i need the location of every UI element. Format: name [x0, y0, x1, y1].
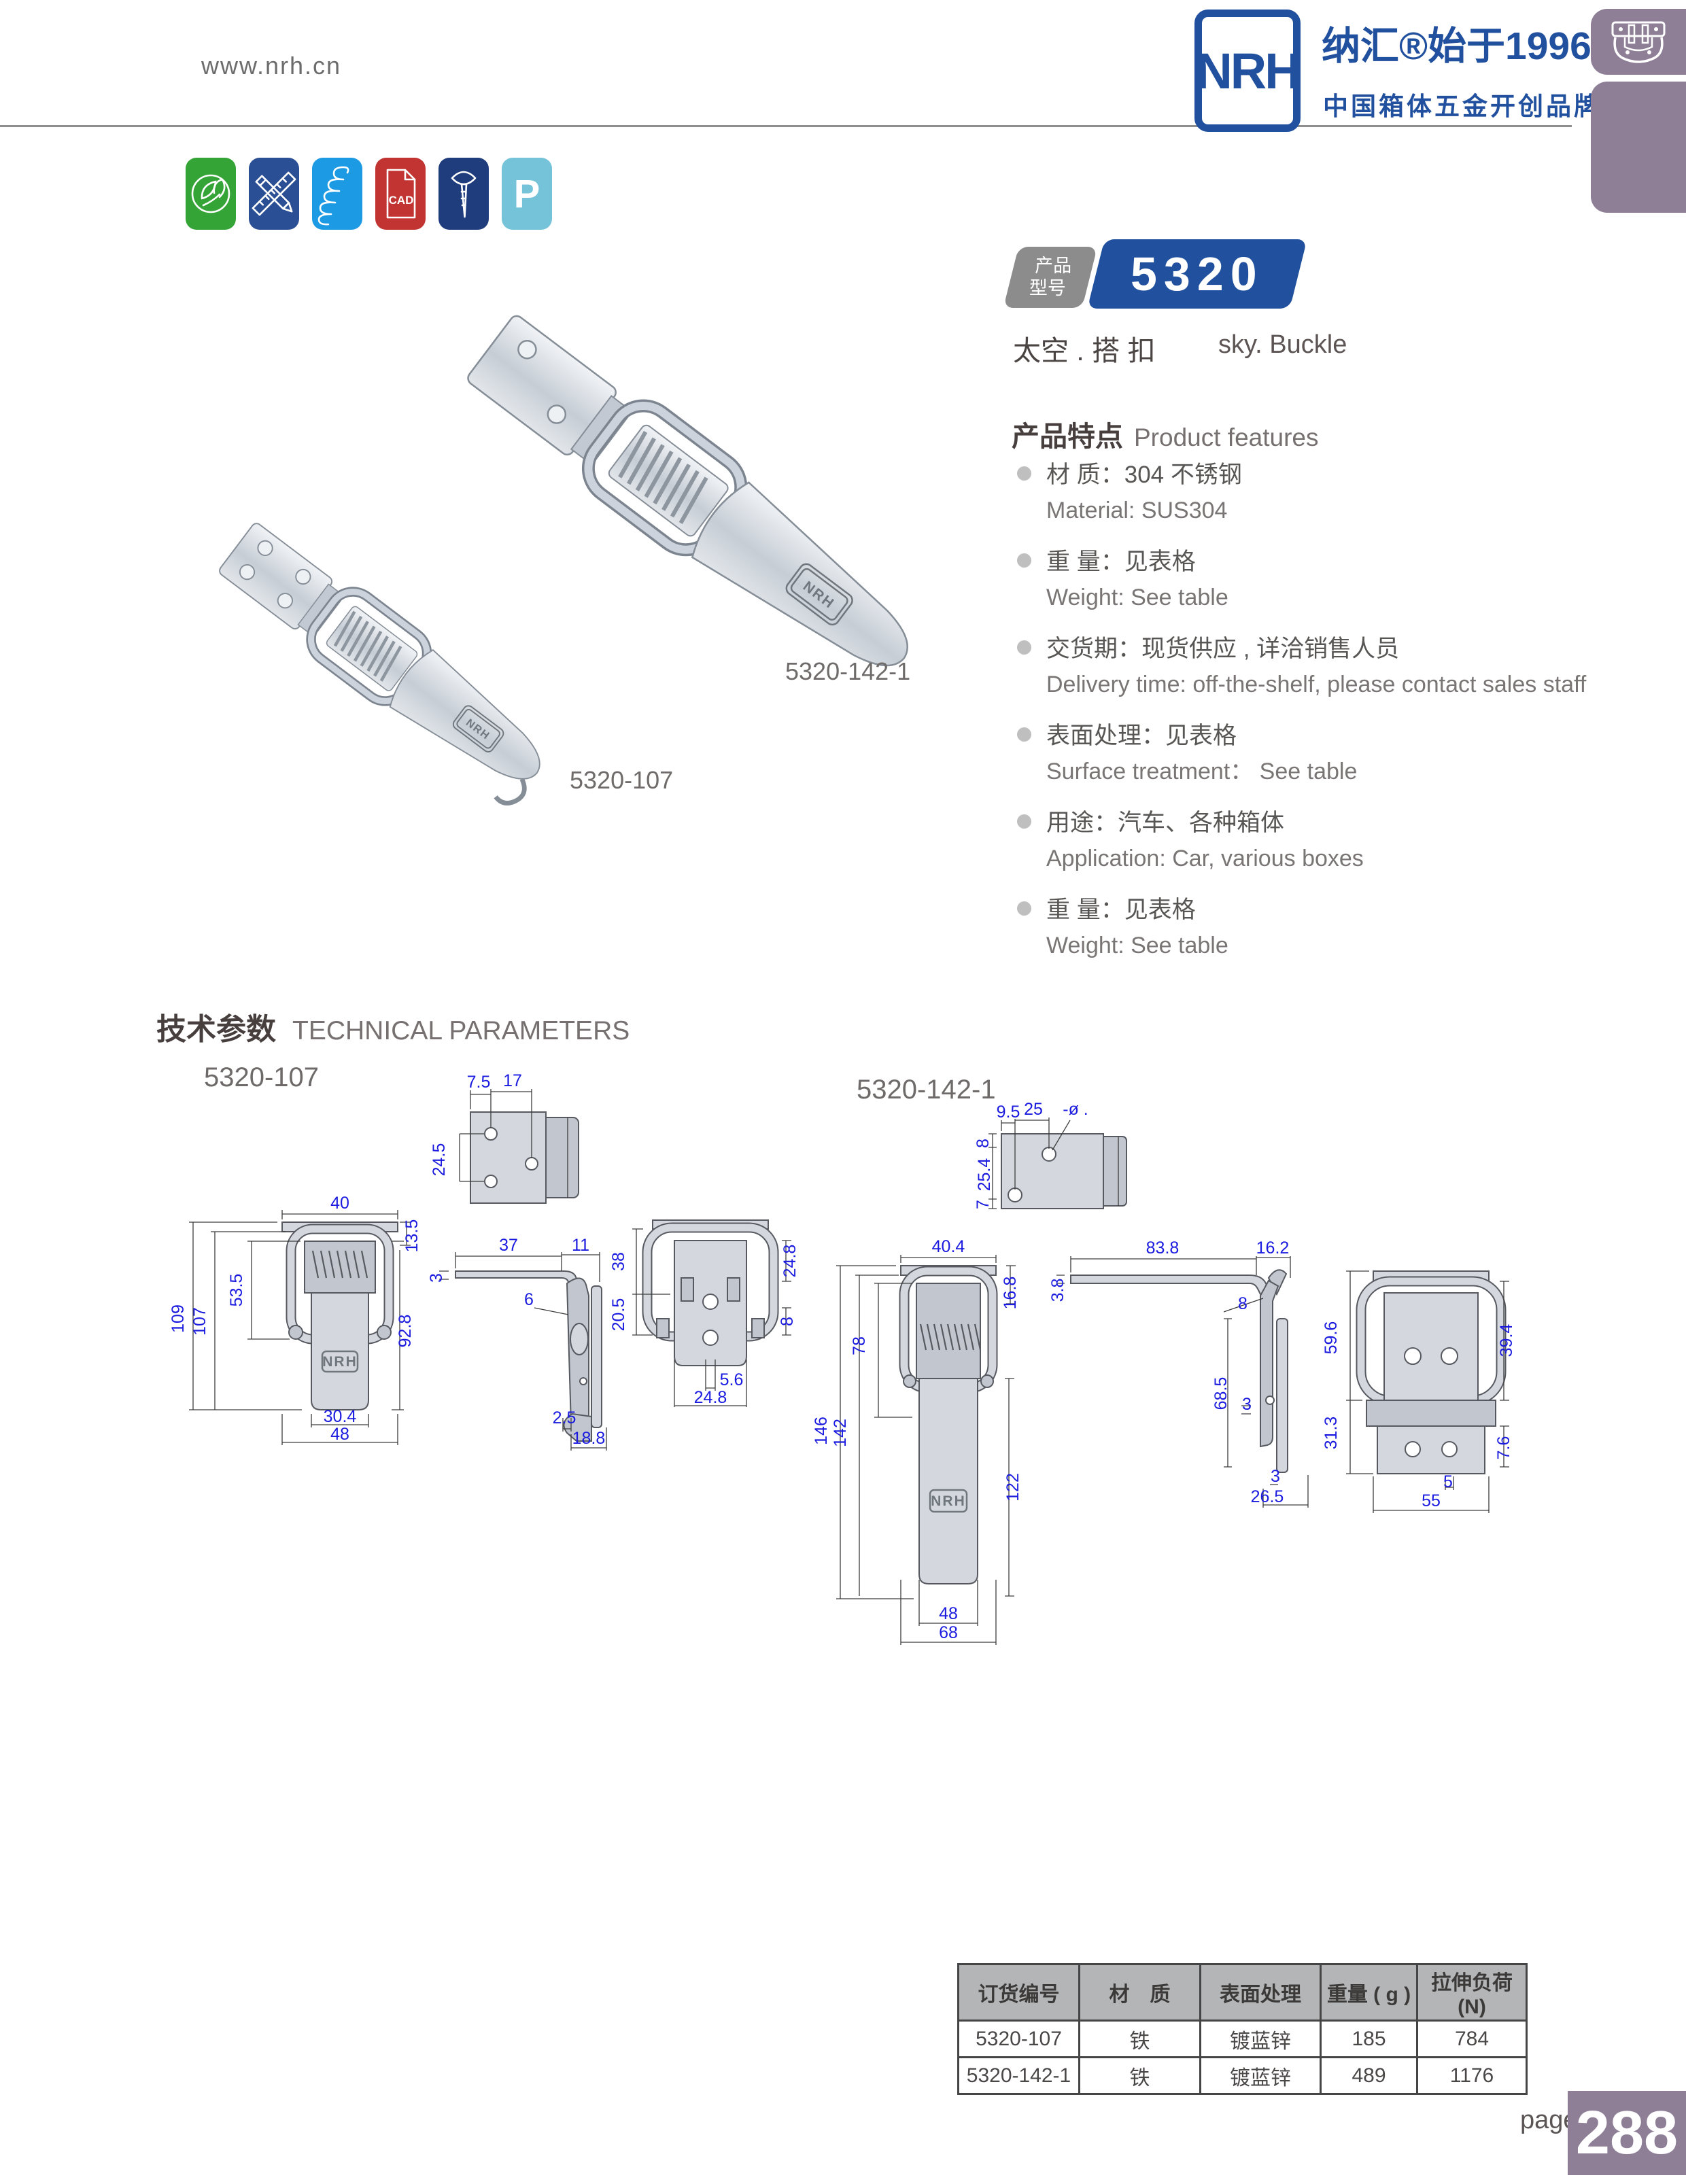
feature-item: 表面处理：见表格 Surface treatment： See table: [1012, 718, 1686, 788]
svg-text:68: 68: [939, 1623, 958, 1642]
svg-text:107: 107: [190, 1307, 209, 1336]
svg-text:40.4: 40.4: [932, 1237, 965, 1256]
technical-drawings: 5320-107 5320-142-1 7.51724.5 NRH 4013.5…: [156, 1047, 1564, 1672]
svg-text:40: 40: [330, 1194, 349, 1213]
header-divider: [0, 125, 1572, 127]
svg-text:NRH: NRH: [322, 1354, 358, 1370]
feature-item: 交货期：现货供应 , 详洽销售人员 Delivery time: off-the…: [1012, 631, 1686, 701]
nrh-logo: NRH: [1194, 10, 1301, 132]
svg-text:25: 25: [1024, 1100, 1043, 1119]
svg-text:16.2: 16.2: [1256, 1238, 1290, 1258]
svg-text:37: 37: [499, 1236, 518, 1255]
drawing-107-back: 3820.524.885.624.8: [609, 1220, 799, 1407]
svg-text:8: 8: [974, 1139, 993, 1148]
svg-text:7.6: 7.6: [1494, 1436, 1513, 1460]
svg-text:7.5: 7.5: [467, 1073, 491, 1092]
svg-text:53.5: 53.5: [227, 1274, 246, 1307]
svg-text:39.4: 39.4: [1497, 1324, 1516, 1357]
spec-table: 订货编号材 质表面处理重量 ( g )拉伸负荷 (N) 5320-107铁镀蓝锌…: [957, 1963, 1528, 2095]
svg-text:109: 109: [169, 1304, 188, 1333]
spec-row: 5320-107铁镀蓝锌185784: [959, 2021, 1527, 2058]
svg-text:25.4: 25.4: [975, 1158, 994, 1192]
spec-cell: 784: [1417, 2021, 1527, 2058]
svg-text:31.3: 31.3: [1322, 1417, 1341, 1450]
svg-text:P: P: [514, 172, 540, 216]
spec-cell: 185: [1321, 2021, 1417, 2058]
model-badge-number: 5320: [1087, 239, 1307, 309]
bullet-icon: [1017, 553, 1031, 568]
eco-leaf-icon: [186, 158, 236, 230]
drawing-142-side: 83.816.23.8868.53326.5: [1048, 1238, 1308, 1508]
p-icon: P: [502, 158, 552, 230]
svg-text:48: 48: [330, 1425, 349, 1444]
bullet-icon: [1017, 727, 1031, 742]
cad-file-icon: CAD: [375, 158, 426, 230]
spec-table-body: 5320-107铁镀蓝锌1857845320-142-1铁镀蓝锌4891176: [959, 2021, 1527, 2094]
feature-icon-row: CAD P: [186, 158, 552, 230]
svg-text:48: 48: [939, 1604, 958, 1623]
drawing-142-front: NRH 40.416.8146142781224868: [812, 1237, 1022, 1645]
product-title-zh: 太空 . 搭 扣: [1013, 328, 1156, 368]
svg-text:NRH: NRH: [931, 1493, 966, 1509]
latch-tab-icon: [1607, 17, 1670, 67]
svg-text:3: 3: [1271, 1467, 1280, 1486]
svg-text:38: 38: [609, 1252, 628, 1271]
svg-text:18.8: 18.8: [572, 1429, 606, 1448]
product-title-en: sky. Buckle: [1218, 330, 1347, 360]
svg-text:146: 146: [812, 1417, 831, 1445]
feature-item: 材 质：304 不锈钢 Material: SUS304: [1012, 457, 1686, 527]
svg-text:24.8: 24.8: [780, 1245, 799, 1278]
svg-text:59.6: 59.6: [1322, 1321, 1341, 1355]
drawing-107-front: NRH 4013.553.510910792.830.448: [169, 1194, 421, 1445]
svg-text:7: 7: [974, 1200, 993, 1209]
svg-text:6: 6: [524, 1290, 534, 1309]
features-heading: 产品特点Product features: [1012, 413, 1318, 454]
svg-text:11: 11: [572, 1236, 589, 1255]
svg-text:142: 142: [831, 1419, 850, 1447]
svg-text:92.8: 92.8: [396, 1315, 415, 1348]
spec-cell: 5320-107: [959, 2021, 1080, 2058]
drawing-107-top: 7.51724.5: [430, 1071, 579, 1203]
spec-table-header: 订货编号材 质表面处理重量 ( g )拉伸负荷 (N): [959, 1964, 1527, 2021]
svg-text:CAD: CAD: [389, 194, 414, 207]
svg-text:122: 122: [1003, 1473, 1022, 1502]
svg-text:17: 17: [503, 1071, 522, 1090]
photo-label-large: 5320-142-1: [785, 657, 910, 685]
svg-text:78: 78: [850, 1336, 869, 1355]
svg-text:3: 3: [427, 1273, 446, 1283]
feature-item: 重 量：见表格 Weight: See table: [1012, 892, 1686, 963]
drawing-model-label-107: 5320-107: [204, 1062, 319, 1092]
drawing-142-back: 59.631.339.47.6555: [1322, 1271, 1516, 1513]
bullet-icon: [1017, 466, 1031, 481]
svg-text:68.5: 68.5: [1211, 1377, 1231, 1410]
photo-label-small: 5320-107: [570, 766, 673, 794]
feature-item: 用途：汽车、各种箱体 Application: Car, various box…: [1012, 805, 1686, 876]
svg-text:83.8: 83.8: [1146, 1238, 1180, 1258]
svg-text:8: 8: [778, 1317, 797, 1326]
svg-text:30.4: 30.4: [324, 1407, 357, 1426]
svg-text:55: 55: [1422, 1491, 1441, 1510]
latch-photo-small: NRH: [209, 516, 562, 810]
spring-icon: [312, 158, 362, 230]
spec-col-header: 表面处理: [1201, 1964, 1321, 2021]
svg-text:3: 3: [1242, 1395, 1252, 1414]
spec-cell: 铁: [1080, 2021, 1201, 2058]
drawing-142-top: 9.525-ø .825.47: [974, 1100, 1126, 1209]
svg-text:5: 5: [1443, 1472, 1453, 1491]
product-photos: NRH NRH 5320-142-1 5320-107: [170, 245, 918, 829]
svg-text:26.5: 26.5: [1251, 1487, 1284, 1506]
spec-col-header: 订货编号: [959, 1964, 1080, 2021]
features-list: 材 质：304 不锈钢 Material: SUS304 重 量：见表格 Wei…: [1012, 457, 1686, 979]
brand-tagline-sub: 中国箱体五金开创品牌: [1323, 86, 1602, 122]
latch-photo-large: NRH: [460, 306, 918, 699]
svg-text:16.8: 16.8: [1001, 1277, 1020, 1310]
tech-heading: 技术参数TECHNICAL PARAMETERS: [156, 1005, 630, 1048]
svg-text:24.8: 24.8: [694, 1388, 727, 1407]
svg-text:20.5: 20.5: [609, 1298, 628, 1332]
spec-cell: 489: [1321, 2058, 1417, 2094]
bullet-icon: [1017, 814, 1031, 829]
model-badge-label: 产品型号: [1003, 247, 1097, 308]
bullet-icon: [1017, 901, 1031, 916]
svg-text:3.8: 3.8: [1048, 1279, 1067, 1302]
spec-cell: 镀蓝锌: [1201, 2021, 1321, 2058]
svg-text:24.5: 24.5: [430, 1143, 449, 1177]
svg-text:-ø .: -ø .: [1063, 1100, 1088, 1119]
site-url-link[interactable]: www.nrh.cn: [201, 52, 341, 80]
svg-text:13.5: 13.5: [402, 1219, 421, 1253]
pin-icon: [438, 158, 489, 230]
spec-cell: 镀蓝锌: [1201, 2058, 1321, 2094]
spec-cell: 1176: [1417, 2058, 1527, 2094]
spec-col-header: 重量 ( g ): [1321, 1964, 1417, 2021]
drawing-107-side: 3711362.518.8: [427, 1236, 606, 1451]
feature-item: 重 量：见表格 Weight: See table: [1012, 544, 1686, 614]
spec-col-header: 拉伸负荷 (N): [1417, 1964, 1527, 2021]
sidebar-tab-blank[interactable]: [1591, 82, 1686, 213]
bullet-icon: [1017, 640, 1031, 655]
page-number-badge: 288: [1568, 2091, 1686, 2175]
svg-text:8: 8: [1238, 1294, 1248, 1313]
sidebar-tab-latch[interactable]: [1591, 9, 1686, 75]
design-tools-icon: [249, 158, 299, 230]
spec-cell: 铁: [1080, 2058, 1201, 2094]
svg-text:5.6: 5.6: [720, 1370, 744, 1389]
drawing-model-label-142: 5320-142-1: [857, 1075, 996, 1105]
spec-col-header: 材 质: [1080, 1964, 1201, 2021]
catalog-page: www.nrh.cn NRH 纳汇®始于1996年 中国箱体五金开创品牌: [0, 0, 1686, 2184]
spec-row: 5320-142-1铁镀蓝锌4891176: [959, 2058, 1527, 2094]
svg-text:9.5: 9.5: [997, 1103, 1020, 1122]
brand-tagline-main: 纳汇®始于1996年: [1322, 15, 1630, 71]
svg-text:2.5: 2.5: [553, 1408, 577, 1427]
spec-cell: 5320-142-1: [959, 2058, 1080, 2094]
